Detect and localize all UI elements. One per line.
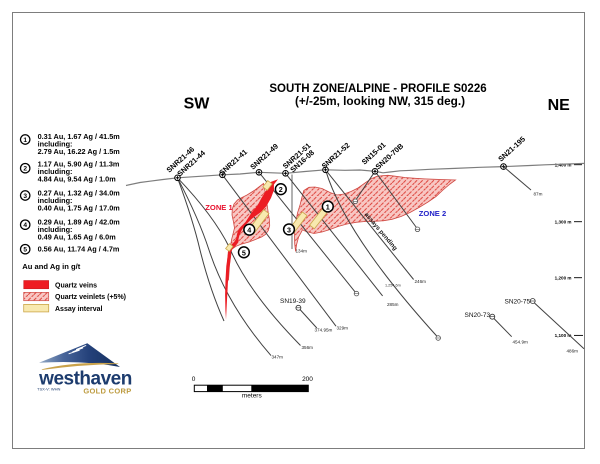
svg-text:SN19-39: SN19-39 xyxy=(280,298,306,305)
svg-text:GOLD CORP: GOLD CORP xyxy=(83,386,131,395)
svg-text:SN20-73: SN20-73 xyxy=(465,312,491,319)
svg-text:Quartz veins: Quartz veins xyxy=(55,282,97,289)
svg-text:374.95m: 374.95m xyxy=(315,328,333,333)
svg-text:4.84 Au, 9.54 Ag / 1.0m: 4.84 Au, 9.54 Ag / 1.0m xyxy=(38,175,117,184)
svg-text:1,300 m: 1,300 m xyxy=(555,219,572,224)
svg-text:(+/-25m, looking NW, 315 deg.): (+/-25m, looking NW, 315 deg.) xyxy=(295,94,465,108)
svg-text:0.49 Au, 1.65 Ag / 6.0m: 0.49 Au, 1.65 Ag / 6.0m xyxy=(38,233,117,242)
svg-text:0.40 Au, 1.75 Ag / 17.0m: 0.40 Au, 1.75 Ag / 17.0m xyxy=(38,203,121,212)
svg-text:0: 0 xyxy=(192,376,196,383)
svg-text:134m: 134m xyxy=(296,248,308,253)
svg-text:Quartz veinlets (+5%): Quartz veinlets (+5%) xyxy=(55,294,126,301)
svg-text:4: 4 xyxy=(23,222,27,229)
svg-text:1,200 m: 1,200 m xyxy=(555,275,572,280)
svg-text:SN20-75: SN20-75 xyxy=(505,298,531,305)
svg-text:1,254.6m: 1,254.6m xyxy=(385,284,401,288)
svg-text:SW: SW xyxy=(184,96,211,113)
svg-text:246m: 246m xyxy=(415,279,427,284)
svg-text:Au and Ag in g/t: Au and Ag in g/t xyxy=(22,262,80,271)
svg-text:285m: 285m xyxy=(387,302,399,307)
svg-text:ZONE 2: ZONE 2 xyxy=(419,209,446,218)
svg-text:NE: NE xyxy=(548,97,571,114)
svg-text:329m: 329m xyxy=(337,326,349,331)
svg-text:1: 1 xyxy=(326,203,330,212)
svg-text:meters: meters xyxy=(242,393,263,400)
svg-text:5: 5 xyxy=(242,248,246,257)
svg-text:486m: 486m xyxy=(567,349,579,354)
svg-text:200: 200 xyxy=(302,376,313,383)
svg-text:2.79 Au, 16.22 Ag / 1.5m: 2.79 Au, 16.22 Ag / 1.5m xyxy=(38,147,121,156)
svg-text:0.56 Au, 11.74 Ag / 4.7m: 0.56 Au, 11.74 Ag / 4.7m xyxy=(38,245,120,254)
svg-text:4: 4 xyxy=(247,226,251,235)
svg-text:454.9m: 454.9m xyxy=(513,340,528,345)
svg-text:TSX-V: WHN: TSX-V: WHN xyxy=(37,387,61,392)
svg-text:347m: 347m xyxy=(272,355,284,360)
svg-text:2: 2 xyxy=(279,185,283,194)
svg-text:Assay interval: Assay interval xyxy=(55,306,103,313)
svg-text:87m: 87m xyxy=(534,192,543,197)
svg-text:3: 3 xyxy=(287,225,291,234)
svg-text:2: 2 xyxy=(23,166,27,173)
svg-text:3: 3 xyxy=(23,193,27,200)
svg-text:ZONE 1: ZONE 1 xyxy=(205,203,233,212)
svg-text:5: 5 xyxy=(23,247,27,254)
svg-text:356m: 356m xyxy=(302,345,314,350)
svg-text:1: 1 xyxy=(23,137,27,144)
